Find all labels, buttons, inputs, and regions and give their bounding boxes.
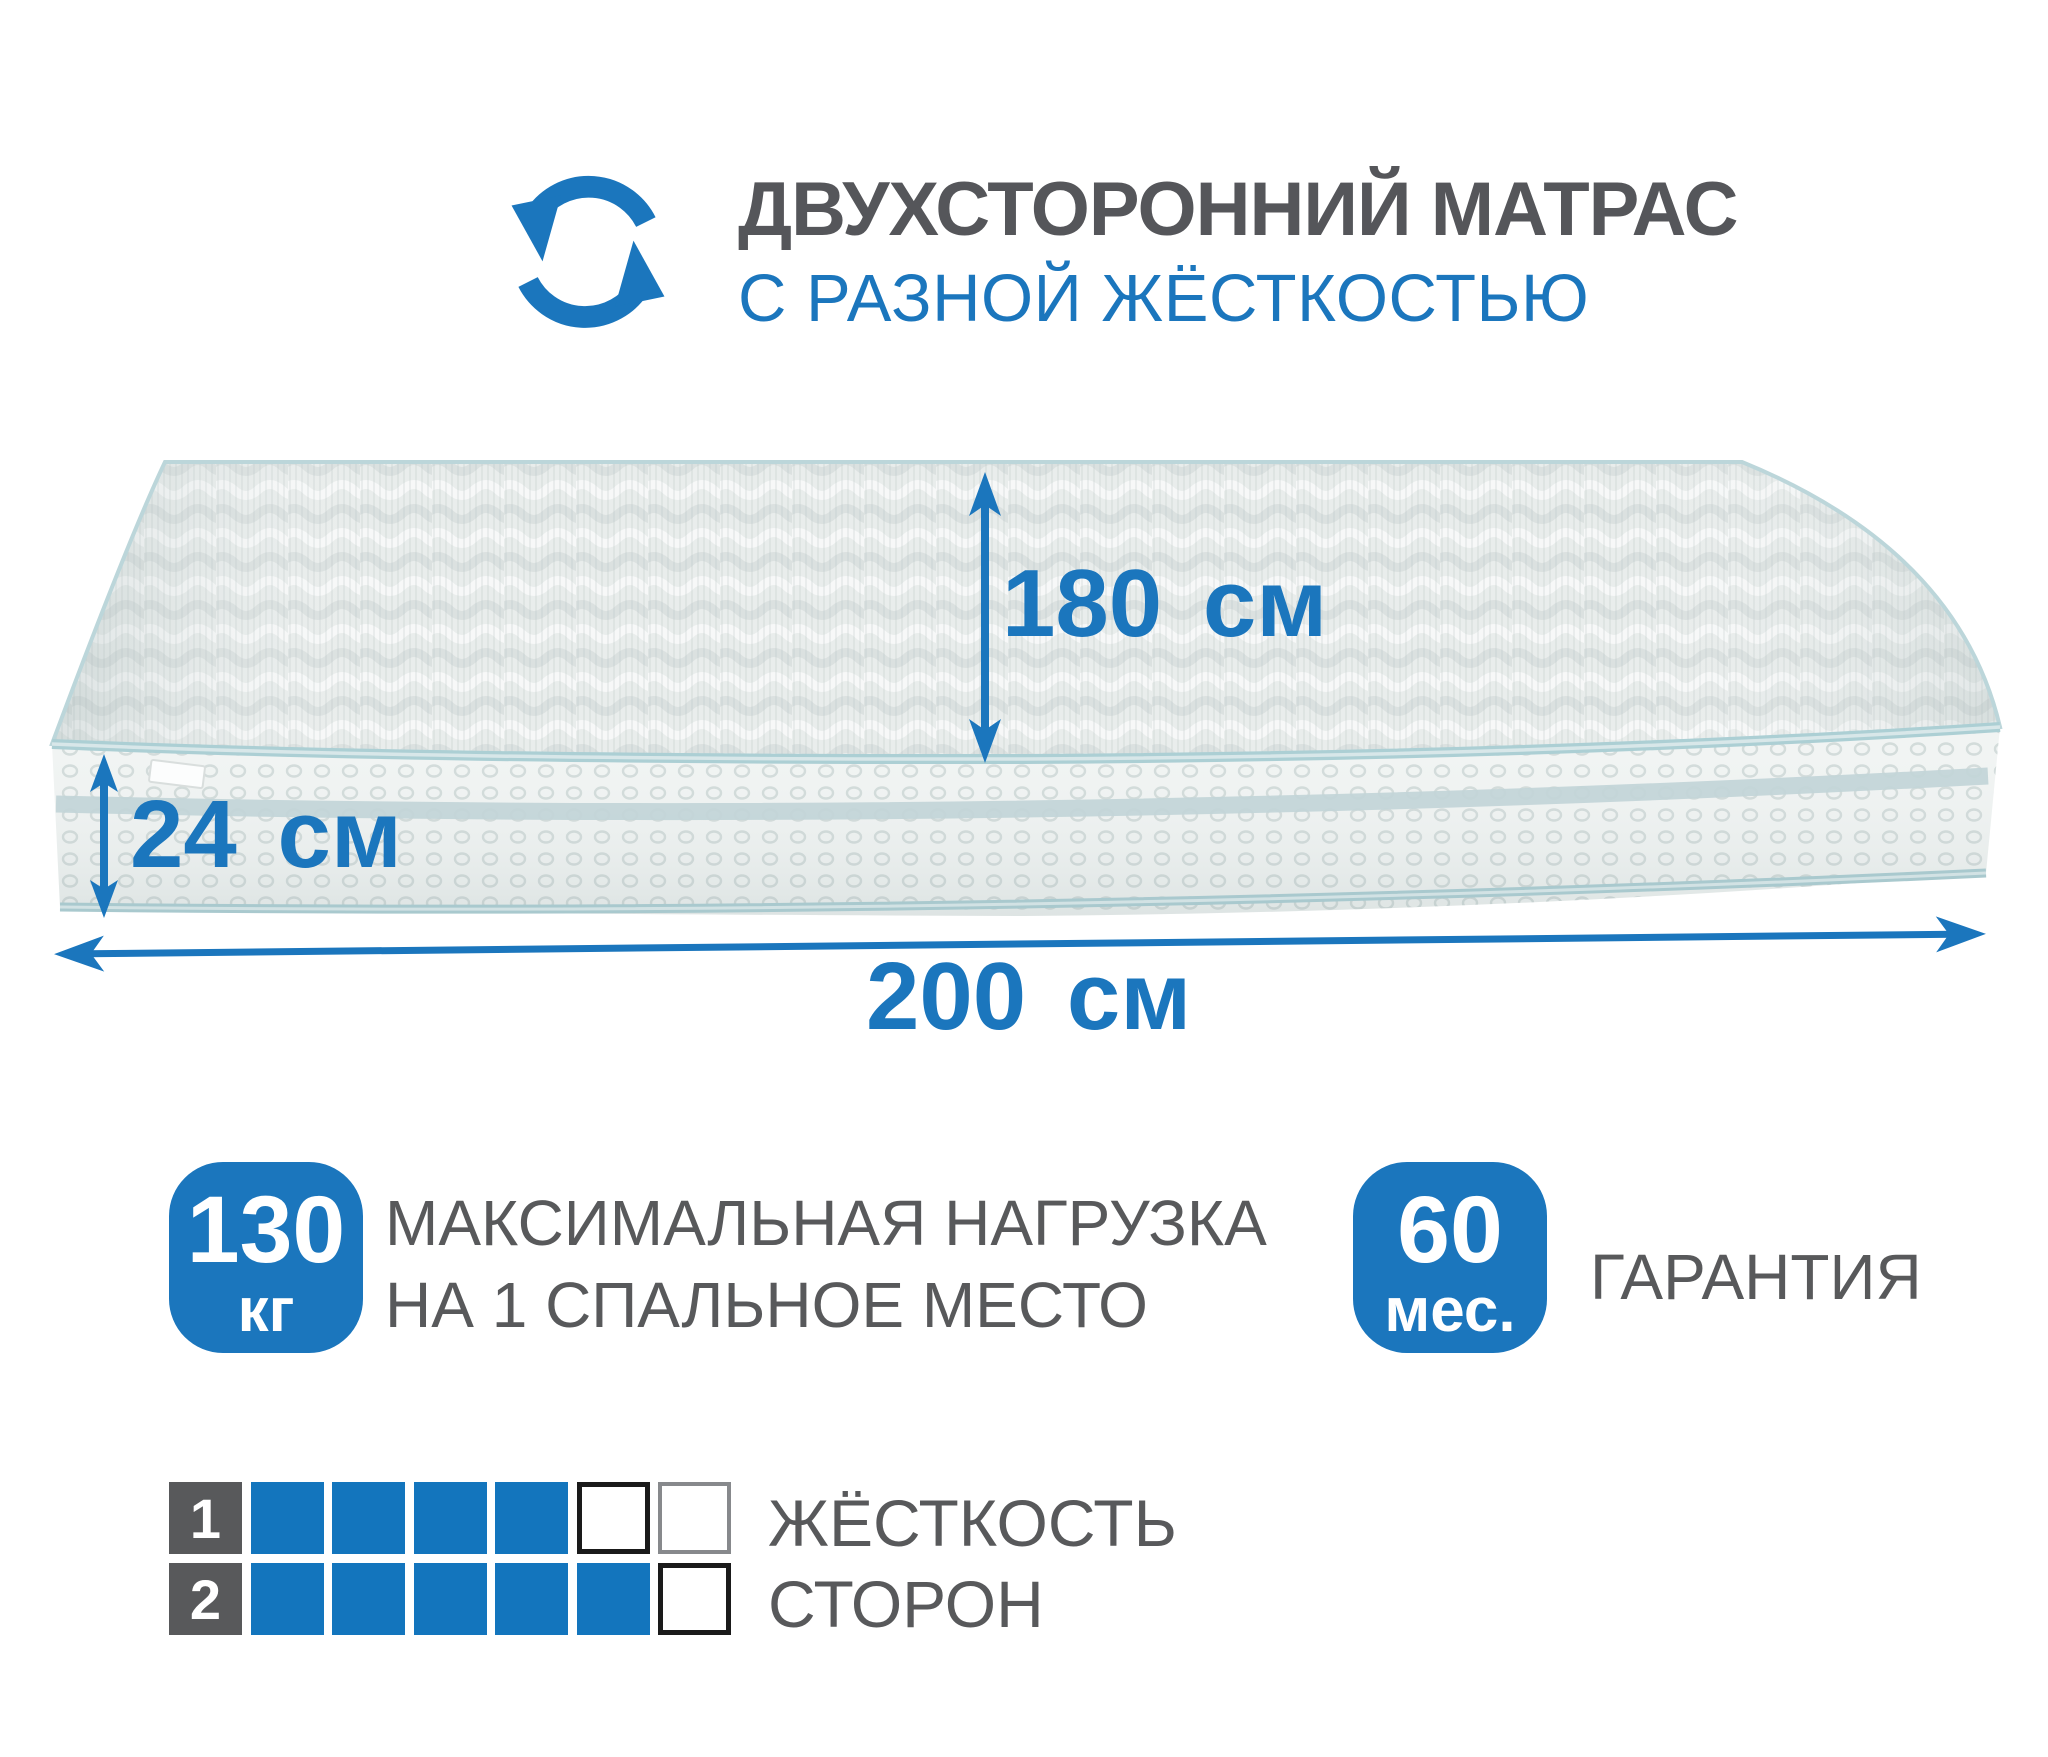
- max-load-unit: кг: [238, 1280, 295, 1342]
- hardness-label-line2: СТОРОН: [768, 1568, 1044, 1640]
- width-dimension-label: 200 см: [866, 949, 1191, 1045]
- hardness-cell-filled: [495, 1563, 568, 1635]
- hardness-row: 2: [169, 1563, 731, 1635]
- hardness-cell-filled: [251, 1563, 324, 1635]
- hardness-cell-empty: [658, 1482, 731, 1554]
- page-subtitle: С РАЗНОЙ ЖЁСТКОСТЬЮ: [738, 262, 1589, 336]
- depth-dimension-label: 180 см: [1002, 556, 1327, 652]
- warranty-value: 60: [1397, 1183, 1503, 1278]
- rotate-arrows-icon: [495, 158, 681, 344]
- warranty-badge: 60 мес.: [1353, 1162, 1547, 1353]
- hardness-rows: 12: [169, 1482, 731, 1635]
- warranty-label: ГАРАНТИЯ: [1590, 1236, 1922, 1318]
- hardness-cell-empty: [658, 1563, 731, 1635]
- thickness-dimension-label: 24 см: [130, 787, 402, 883]
- thickness-dimension-arrow: [74, 752, 134, 920]
- hardness-cell-empty: [577, 1482, 650, 1554]
- hardness-row-number: 2: [169, 1563, 242, 1635]
- hardness-cell-filled: [495, 1482, 568, 1554]
- hardness-cell-filled: [332, 1482, 405, 1554]
- max-load-value: 130: [187, 1183, 346, 1278]
- hardness-cell-filled: [577, 1563, 650, 1635]
- hardness-cell-filled: [414, 1482, 487, 1554]
- hardness-cell-filled: [251, 1482, 324, 1554]
- max-load-badge: 130 кг: [169, 1162, 363, 1353]
- hardness-cell-filled: [332, 1563, 405, 1635]
- warranty-unit: мес.: [1384, 1280, 1515, 1342]
- hardness-row: 1: [169, 1482, 731, 1554]
- page-title: ДВУХСТОРОННИЙ МАТРАС: [738, 168, 1738, 252]
- hardness-label-line1: ЖЁСТКОСТЬ: [768, 1487, 1177, 1559]
- max-load-description: МАКСИМАЛЬНАЯ НАГРУЗКА НА 1 СПАЛЬНОЕ МЕСТ…: [385, 1182, 1267, 1346]
- hardness-cell-filled: [414, 1563, 487, 1635]
- hardness-row-number: 1: [169, 1482, 242, 1554]
